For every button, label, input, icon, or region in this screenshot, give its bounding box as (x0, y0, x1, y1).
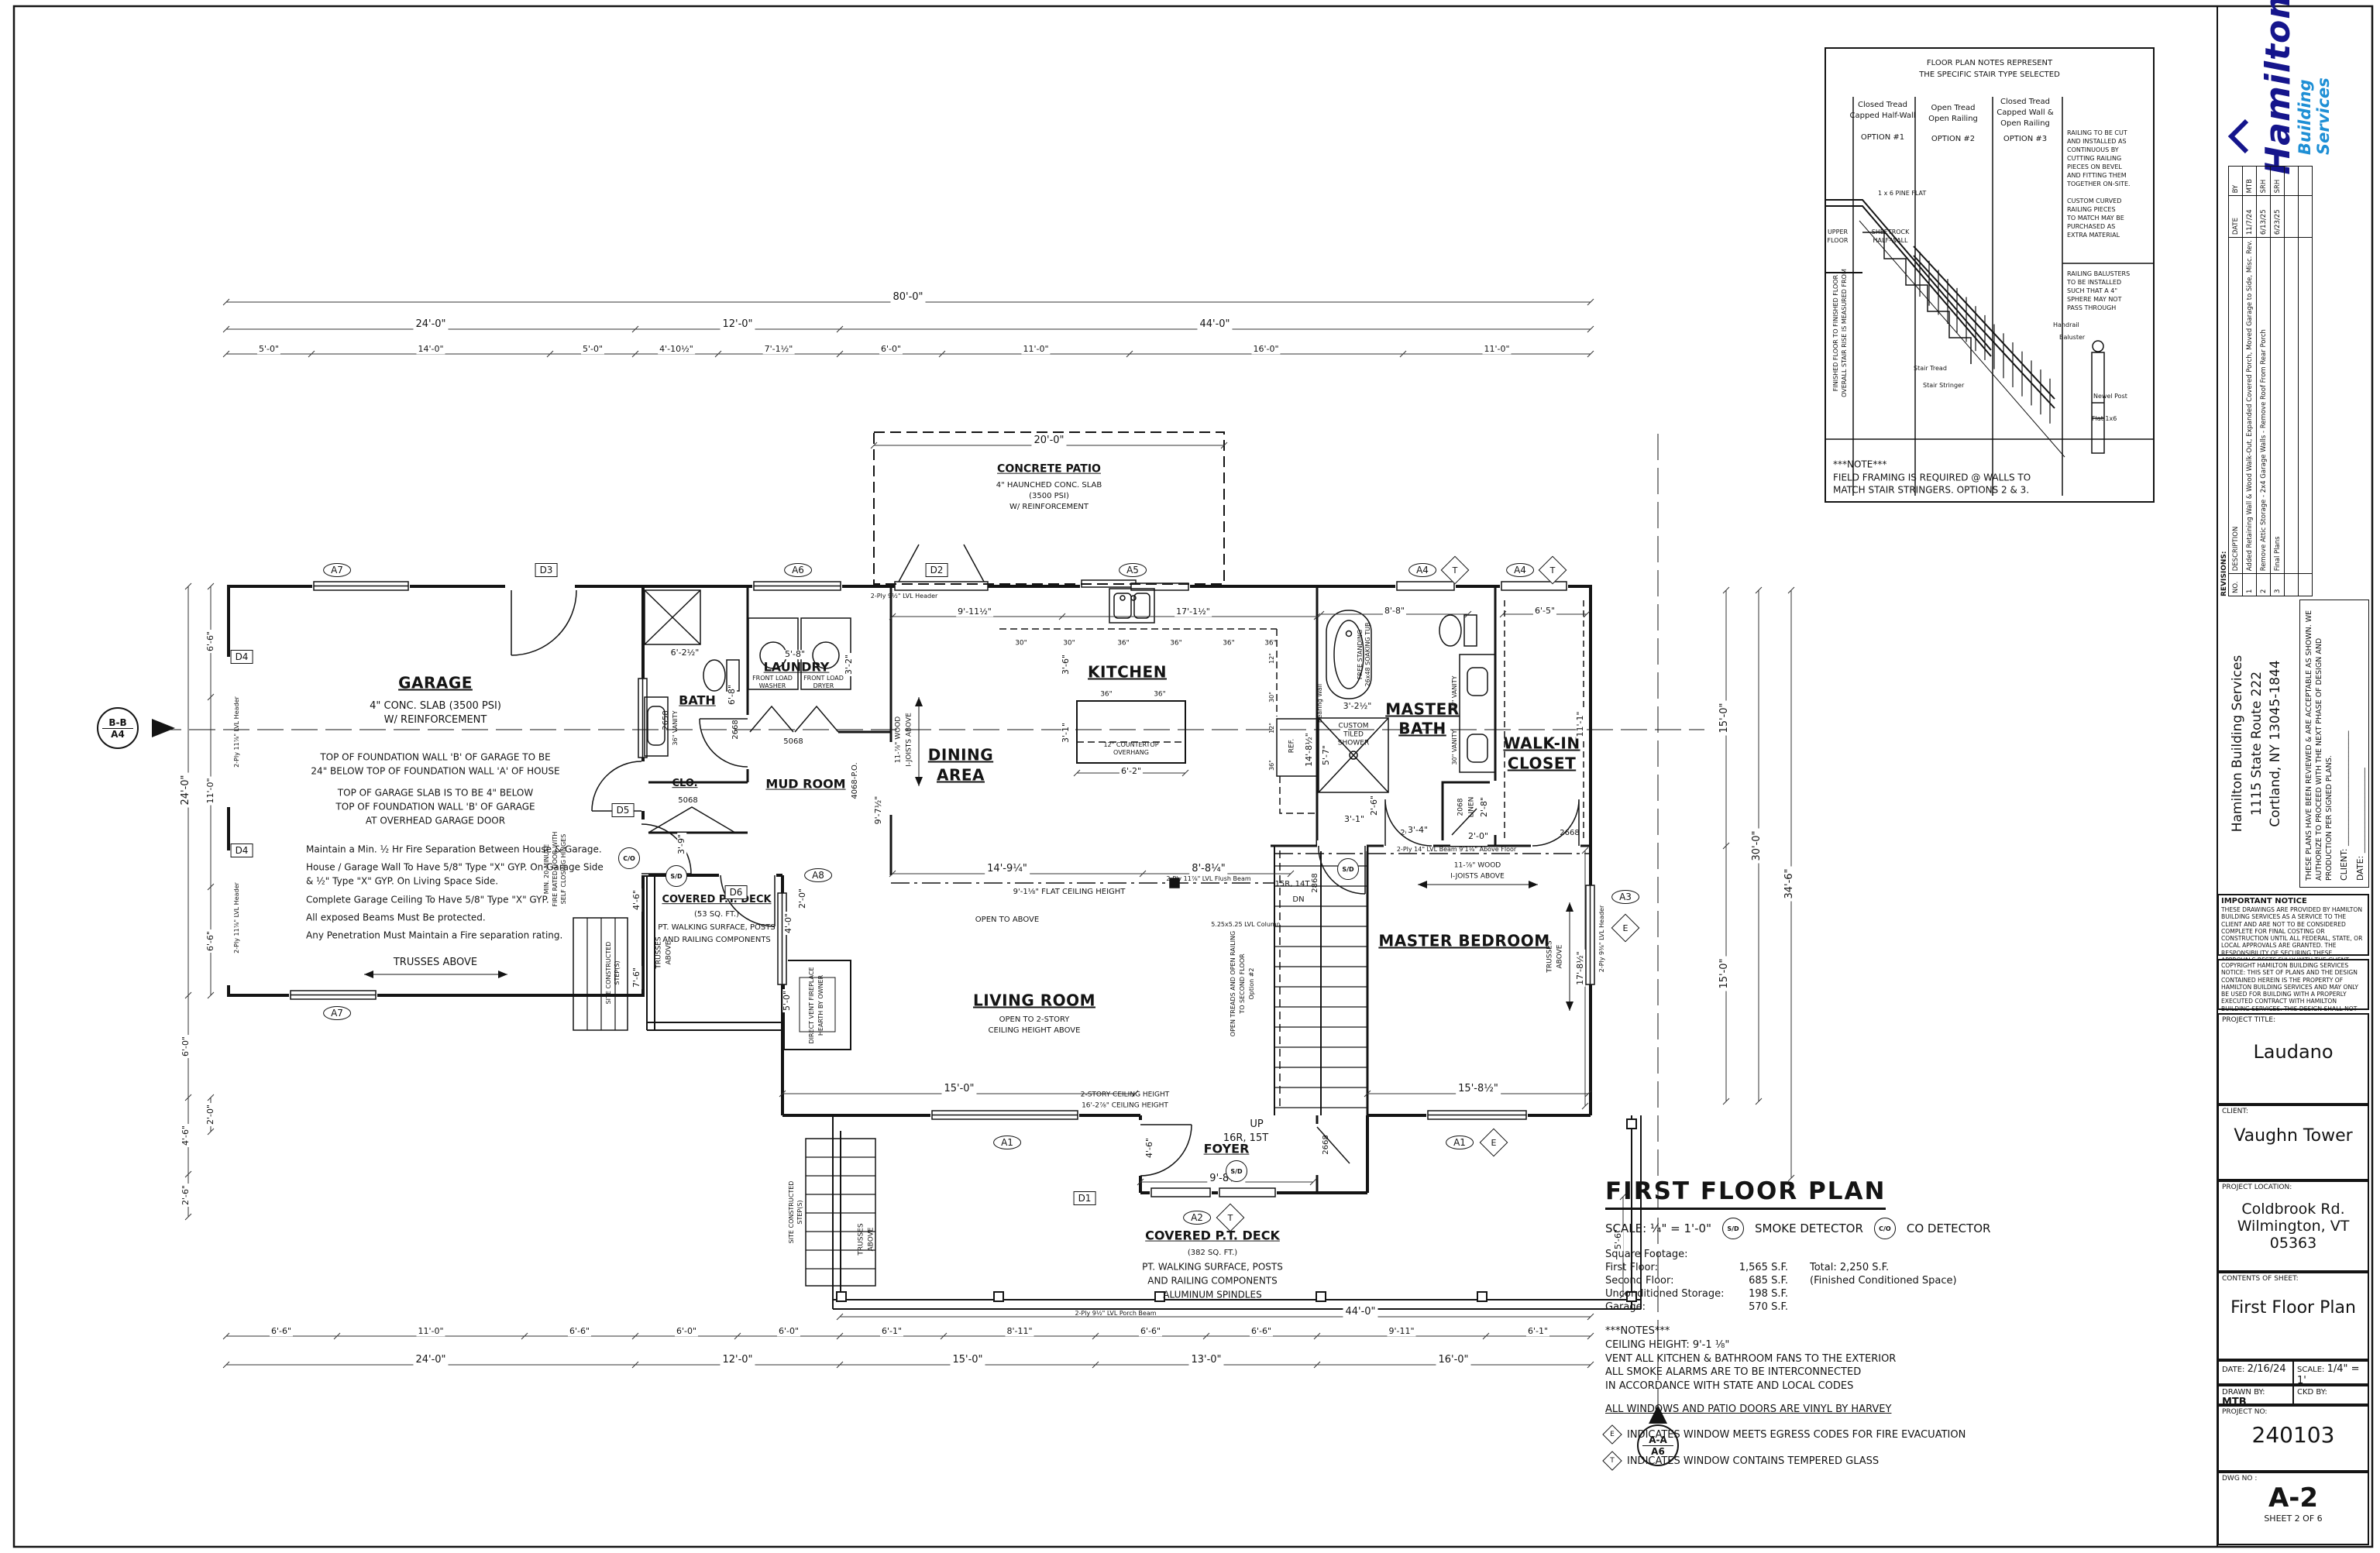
plan-text: AND RAILING COMPONENTS (1147, 1276, 1278, 1287)
plan-text: 2'-8" (1480, 795, 1489, 819)
plan-text: 11'-0" (1021, 345, 1050, 354)
plan-text: WALK-IN (1503, 736, 1580, 752)
plan-text: SHEETROCK (1872, 229, 1910, 235)
plan-text: 14'-0" (416, 345, 445, 354)
client-box: CLIENT: Vaughn Tower (2217, 1105, 2369, 1180)
note-line: VENT ALL KITCHEN & BATHROOM FANS TO THE … (1605, 1352, 2008, 1366)
plan-text: WASHER (759, 683, 786, 689)
plan-text: SITE CONSTRUCTED (606, 942, 612, 1005)
window-tag-A2: A2 (1183, 1211, 1211, 1225)
tempered-note: INDICATES WINDOW CONTAINS TEMPERED GLASS (1627, 1455, 1879, 1467)
plan-text: 8'-8" (1383, 606, 1406, 616)
plan-text: 12'-0" (720, 319, 755, 330)
notes-title: ***NOTES*** (1605, 1325, 2008, 1338)
plan-text: UP (1250, 1119, 1263, 1130)
window-tag-A1: A1 (1446, 1136, 1474, 1149)
plan-text: PT. WALKING SURFACE, POSTS (658, 924, 775, 933)
contents-value: First Floor Plan (2219, 1298, 2368, 1318)
plan-text: 2'-6" (181, 1184, 191, 1207)
plan-text: 2-Ply 11⅞" LVL Header (234, 696, 240, 768)
plan-text: OPEN TREADS AND OPEN RAILING (1230, 931, 1236, 1036)
plan-text: TRUSSES (1546, 940, 1553, 972)
door-tag-D4: D4 (231, 650, 253, 664)
plan-text: 6'-2" (1119, 767, 1143, 776)
plan-text: RAILING BALUSTERS (2067, 271, 2130, 277)
revision-row-empty (2299, 167, 2313, 596)
plan-text: 2-Ply 11⅞" LVL Flush Beam (1166, 876, 1250, 882)
plan-text: 17'-1½" (1175, 607, 1212, 617)
plan-text: 5.25x5.25 LVL Column (1211, 922, 1281, 928)
plan-text: AT OVERHEAD GARAGE DOOR (366, 816, 505, 826)
plan-text: W/ REINFORCEMENT (1009, 503, 1089, 512)
plan-text: 5068 (678, 797, 697, 806)
plan-text: 6'-0" (181, 1035, 191, 1058)
plan-text: 11-⅞" WOOD (895, 716, 902, 763)
plan-text: LAUNDRY (764, 661, 830, 675)
plan-text: 16'-0" (1436, 1355, 1470, 1366)
plan-text: 17'-8½" (1576, 950, 1585, 987)
plan-text: 6'-1" (880, 1327, 903, 1336)
plan-text: SUCH THAT A 4" (2067, 288, 2117, 294)
plan-text: AND INSTALLED AS (2067, 139, 2127, 145)
plan-text: FIELD FRAMING IS REQUIRED @ WALLS TO (1833, 473, 2031, 483)
plan-text: Capped Wall & (1997, 109, 2053, 118)
section-marker-B-B: B-BA4 (97, 707, 139, 749)
project-no-label: PROJECT NO: (2219, 1407, 2368, 1416)
plan-text: 2'-6" (1370, 794, 1379, 817)
plan-text: Complete Garage Ceiling To Have 5/8" Typ… (306, 895, 549, 905)
logo-name: Hamilton (2263, 0, 2294, 175)
plan-text: 6'-0" (879, 345, 903, 354)
drawn-row: DRAWN BY: MTB CKD BY: (2217, 1385, 2369, 1405)
plan-text: (3500 PSI) (1029, 493, 1069, 501)
project-title-box: PROJECT TITLE: Laudano (2217, 1013, 2369, 1105)
door-tag-D5: D5 (612, 803, 635, 817)
plan-text: 3'-1" (1061, 721, 1071, 744)
revisions-block: REVISIONS: NO. DESCRIPTION DATE BY 1Adde… (2220, 166, 2369, 596)
company-logo: Hamilton Building Services (2227, 14, 2369, 155)
plan-text: 4'-10½" (658, 345, 695, 354)
plan-text: AREA (937, 768, 985, 784)
project-title-label: PROJECT TITLE: (2219, 1015, 2368, 1024)
revision-row: 1Added Retaining Wall & Wood Walk-Out, E… (2243, 167, 2257, 596)
rev-col-no: NO. (2229, 574, 2243, 596)
plan-text: 6'-8" (727, 683, 737, 706)
plan-text: CLOSET (1508, 756, 1576, 772)
plan-text: 8'-8¼" (1189, 864, 1227, 874)
rev-col-date: DATE (2229, 196, 2243, 238)
plan-text: SHOWER (1338, 740, 1369, 747)
plan-text: OPTION #3 (2003, 136, 2047, 144)
plan-text: & ½" Type "X" GYP. On Living Space Side. (306, 877, 498, 887)
vinyl-note: ALL WINDOWS AND PATIO DOORS ARE VINYL BY… (1605, 1404, 2008, 1415)
plan-text: 11'-0" (1482, 345, 1511, 354)
smoke-detector-label: SMOKE DETECTOR (1755, 1221, 1863, 1235)
logo-house-icon (2227, 118, 2250, 155)
plan-text: 30'-0" (1752, 828, 1763, 863)
plan-text: 3'-4" (1406, 826, 1429, 835)
plan-text: 11'-1" (1576, 710, 1585, 738)
plan-text: 1 x 6 PINE FLAT (1878, 191, 1926, 197)
note-line: ALL SMOKE ALARMS ARE TO BE INTERCONNECTE… (1605, 1366, 2008, 1379)
plan-text: 4" CONC. SLAB (3500 PSI) (370, 701, 501, 712)
plan-text: FLOOR PLAN NOTES REPRESENT (1927, 60, 2052, 68)
plan-text: GARAGE (398, 675, 473, 692)
plan-text: HEARTH BY OWNER (818, 975, 824, 1036)
approval-date-label: DATE: (2355, 856, 2365, 881)
plan-text: CUTTING RAILING (2067, 156, 2121, 162)
plan-text: CUSTOM CURVED (2067, 198, 2121, 204)
project-no-value: 240103 (2219, 1422, 2368, 1448)
plan-text: 36" (1117, 640, 1130, 647)
plan-text: 9'-1⅛" FLAT CEILING HEIGHT (1013, 888, 1126, 897)
plan-text: Bearing Wall (1317, 684, 1323, 723)
smoke-detector-symbol: S/D (666, 865, 687, 887)
plan-text: 36" (1223, 640, 1235, 647)
date-value: 2/16/24 (2248, 1363, 2286, 1375)
plan-text: STEP(S) (614, 960, 621, 984)
plan-text: 7'-6" (632, 966, 641, 989)
plan-text: 6'-6" (206, 929, 215, 953)
plan-text: HALF-WALL (1873, 238, 1908, 244)
plan-text: 30" (1063, 640, 1075, 647)
client-value: Vaughn Tower (2219, 1126, 2368, 1146)
plan-text: Open Tread (1931, 105, 1975, 113)
plan-text: 13'-0" (1188, 1355, 1223, 1366)
plan-text: 36" (1170, 640, 1182, 647)
plan-text: House / Garage Wall To Have 5/8" Type "X… (306, 863, 604, 873)
plan-text: 8'-11" (1005, 1327, 1034, 1336)
plan-text: All exposed Beams Must Be protected. (306, 913, 486, 923)
plan-text: CONTINUOUS BY (2067, 147, 2119, 153)
project-no-box: PROJECT NO: 240103 (2217, 1405, 2369, 1472)
plan-text: OPEN TO ABOVE (975, 916, 1039, 925)
smoke-detector-icon: S/D (1722, 1218, 1744, 1239)
rev-col-by: BY (2229, 167, 2243, 196)
plan-text: RAILING PIECES (2067, 207, 2116, 213)
plan-text: FRONT LOAD (752, 675, 793, 682)
copyright-notice: COPYRIGHT HAMILTON BUILDING SERVICES NOT… (2217, 959, 2369, 1010)
drawing-sheet: GARAGE4" CONC. SLAB (3500 PSI)W/ REINFOR… (0, 0, 2380, 1553)
plan-text: 15'-0" (1719, 700, 1730, 735)
plan-text: I-JOISTS ABOVE (906, 713, 913, 767)
plan-text: PURCHASED AS (2067, 224, 2115, 230)
plan-text: 6'-2½" (669, 648, 701, 658)
plan-text: AND FITTING THEM (2067, 173, 2127, 179)
plan-text: DINING (928, 747, 993, 764)
plan-text: 3'-1" (1343, 815, 1366, 824)
plan-text: TO MATCH MAY BE (2067, 215, 2124, 222)
plan-text: 12" (1269, 723, 1275, 734)
plan-text: 20'-0" (1031, 435, 1066, 446)
plan-text: 16'-2⅞" CEILING HEIGHT (1082, 1102, 1168, 1109)
plan-text: 7'-1½" (763, 345, 795, 354)
plan-text: MUD ROOM (765, 778, 845, 792)
plan-text: 9'-11" (1387, 1327, 1415, 1336)
plan-text: COVERED P.T. DECK (662, 895, 771, 905)
co-detector-symbol: C/O (618, 847, 640, 869)
plan-text: TOP OF GARAGE SLAB IS TO BE 4" BELOW (338, 789, 533, 799)
plan-text: 4'-6" (1145, 1136, 1154, 1160)
location-box: PROJECT LOCATION: Coldbrook Rd. Wilmingt… (2217, 1180, 2369, 1272)
plan-text: LIVING ROOM (973, 993, 1095, 1009)
drawn-label: DRAWN BY: (2222, 1388, 2265, 1397)
contents-label: CONTENTS OF SHEET: (2219, 1273, 2368, 1283)
plan-text: 2'-0" (798, 887, 807, 910)
plan-text: ALUMINUM SPINDLES (1163, 1290, 1261, 1300)
approval-text: THESE PLANS HAVE BEEN REVIEWED & ARE ACC… (2305, 606, 2334, 881)
plan-text: OPEN TO 2-STORY (999, 1016, 1070, 1025)
plan-text: 2'-0" (206, 1103, 215, 1126)
plan-text: 2658 (662, 710, 671, 730)
plan-text: 6'-6" (1139, 1327, 1162, 1336)
company-address: Hamilton Building Services 1115 State Ro… (2220, 600, 2293, 888)
plan-text: 6'-0" (675, 1327, 698, 1336)
plan-text: 5'-0" (581, 345, 604, 354)
plan-text: SITE CONSTRUCTED (789, 1181, 795, 1244)
plan-text: CONCRETE PATIO (997, 464, 1101, 476)
plan-title: FIRST FLOOR PLAN (1605, 1177, 1886, 1210)
plan-text: OVERALL STAIR RISE IS MEASURED FROM (1842, 269, 1848, 397)
plan-text: 11'-0" (416, 1327, 445, 1336)
plan-text: SELF CLOSING HINGES (561, 834, 567, 905)
window-tag-A7: A7 (323, 1006, 351, 1020)
plan-text: FREE STANDING (1357, 630, 1364, 679)
plan-text: 24'-0" (413, 319, 448, 330)
tempered-icon: T (1602, 1451, 1622, 1470)
plan-text: BATH (679, 695, 716, 708)
plan-text: BATH (1398, 721, 1446, 737)
plan-text: 6'-6" (270, 1327, 293, 1336)
window-tag-A4: A4 (1506, 563, 1534, 577)
plan-text: Closed Tread (1858, 101, 1907, 110)
plan-text: PT. WALKING SURFACE, POSTS (1142, 1263, 1283, 1273)
plan-text: FINISHED FLOOR TO FINISHED FLOOR (1833, 275, 1839, 391)
plan-text: 2868 (1312, 873, 1320, 892)
plan-text: 3'-2" (844, 653, 854, 676)
egress-icon: E (1602, 1424, 1622, 1444)
address-line: Cortland, NY 13045-1844 (2266, 660, 2285, 826)
door-tag-D1: D1 (1074, 1191, 1096, 1205)
plan-text: MATCH STAIR STRINGERS. OPTIONS 2 & 3. (1833, 486, 2029, 496)
plan-text: 2668 (1560, 830, 1579, 838)
sheet-number: SHEET 2 OF 6 (2219, 1513, 2368, 1524)
dwg-no-value: A-2 (2219, 1483, 2368, 1513)
plan-text: 26x48 SOAKING TUB (1365, 623, 1371, 687)
plan-text: TO BE INSTALLED (2067, 280, 2121, 286)
plan-text: TOP OF FOUNDATION WALL 'B' OF GARAGE (335, 802, 535, 813)
plan-text: UPPER (1828, 229, 1848, 235)
checked-label: CKD BY: (2297, 1388, 2327, 1397)
plan-text: 2-Ply 9½" LVL Header (871, 593, 938, 600)
plan-text: I-JOISTS ABOVE (1450, 873, 1505, 880)
fixtures (645, 589, 1495, 792)
plan-text: CLO. (672, 778, 697, 789)
plan-text: 15'-0" (950, 1355, 985, 1366)
contents-box: CONTENTS OF SHEET: First Floor Plan (2217, 1272, 2369, 1360)
plan-text: Stair Tread (1914, 366, 1947, 372)
plan-text: 9'-7½" (874, 795, 883, 826)
address-line: Hamilton Building Services (2228, 655, 2248, 833)
plan-text: 36" VANITY (672, 711, 679, 746)
logo-tagline: Building Services (2296, 14, 2333, 155)
plan-text: 15'-8½" (1456, 1084, 1501, 1094)
plan-text: PASS THROUGH (2067, 305, 2116, 311)
plan-text: 6'-0" (777, 1327, 800, 1336)
plan-text: 6'-6" (568, 1327, 591, 1336)
smoke-detector-symbol: S/D (1226, 1160, 1247, 1182)
plan-text: 16R, 15T (1223, 1133, 1268, 1144)
client-label: CLIENT: (2219, 1106, 2368, 1115)
window-tag-A7: A7 (323, 563, 351, 577)
plan-text: Baluster (2059, 335, 2085, 341)
plan-text: 4" HAUNCHED CONC. SLAB (996, 482, 1102, 490)
plan-text: 2068 (1457, 799, 1464, 816)
plan-text: TRUSSES ABOVE (394, 957, 477, 968)
co-detector-label: CO DETECTOR (1907, 1221, 1991, 1235)
plan-text: 24'-0" (181, 772, 191, 807)
sqft-row: Garage:570 S.F. (1605, 1301, 2008, 1314)
plan-text: OPTION #2 (1931, 136, 1975, 144)
plan-text: 15'-0" (941, 1084, 976, 1094)
plan-text: 2-Ply 9⅜" LVL Header (1599, 905, 1605, 973)
plan-text: RAILING TO BE CUT (2067, 130, 2127, 136)
plan-text: FIRE RATED DOOR WITH (552, 832, 559, 907)
window-tag-A1: A1 (993, 1136, 1021, 1149)
project-title-value: Laudano (2219, 1041, 2368, 1063)
plan-text: 30" (1015, 640, 1027, 647)
plan-text: Open Railing (2000, 120, 2050, 129)
dwg-no-box: DWG NO : A-2 SHEET 2 OF 6 (2217, 1472, 2369, 1545)
plan-text: Newel Post (2093, 393, 2127, 400)
co-detector-icon: C/O (1874, 1218, 1896, 1239)
plan-text: Handrail (2053, 322, 2079, 328)
revision-row-empty (2285, 167, 2299, 596)
window-tag-A4: A4 (1408, 563, 1436, 577)
note-line: CEILING HEIGHT: 9'-1 ⅛" (1605, 1338, 2008, 1352)
plan-text: 24" BELOW TOP OF FOUNDATION WALL 'A' OF … (311, 767, 559, 777)
egress-note: INDICATES WINDOW MEETS EGRESS CODES FOR … (1627, 1429, 1966, 1441)
plan-text: 24'-0" (413, 1355, 448, 1366)
plan-text: THE SPECIFIC STAIR TYPE SELECTED (1919, 71, 2060, 80)
plan-text: 36" (1100, 691, 1113, 698)
window-tag-A5: A5 (1119, 563, 1147, 577)
plan-text: 2668 (732, 720, 741, 739)
plan-text: FOYER (1204, 1143, 1250, 1156)
location-line1: Coldbrook Rd. (2219, 1201, 2368, 1218)
sqft-row: Second Floor:685 S.F.(Finished Condition… (1605, 1275, 2008, 1288)
revisions-label: REVISIONS: (2220, 166, 2228, 596)
revisions-table: NO. DESCRIPTION DATE BY 1Added Retaining… (2228, 166, 2313, 596)
plan-text: 3'-9" (677, 833, 686, 856)
plan-text: 2-Ply 11⅞" LVL Header (234, 882, 240, 953)
plan-text: 9'-11½" (956, 607, 993, 617)
plan-text: 30" (1269, 692, 1275, 703)
sqft-row: First Floor:1,565 S.F.Total: 2,250 S.F. (1605, 1262, 2008, 1275)
plan-text: CUSTOM (1339, 723, 1369, 730)
location-label: PROJECT LOCATION: (2219, 1182, 2368, 1191)
window-tag-A3: A3 (1611, 890, 1639, 904)
plan-text: ABOVE (666, 941, 672, 965)
plan-text: 30" VANITY (1452, 676, 1458, 711)
plan-text: DRYER (813, 683, 834, 689)
plan-text: 30" VANITY (1452, 730, 1458, 765)
plan-text: REF. (1288, 739, 1295, 754)
plan-text: 3'-2½" (1342, 702, 1374, 711)
date-label: DATE: (2222, 1366, 2244, 1374)
windows (291, 580, 1594, 1197)
plan-text: DN (1292, 896, 1304, 905)
plan-text: FLOOR (1828, 238, 1849, 244)
window-tag-A8: A8 (804, 868, 832, 882)
plan-text: 4068-P.O. (851, 762, 860, 799)
plan-text: 36" (1264, 640, 1277, 647)
revision-row: 2Remove Attic Storage - 2x4 Garage Walls… (2257, 167, 2271, 596)
plan-text: 5'-0" (782, 989, 792, 1012)
plan-text: 2-STORY CEILING HEIGHT (1081, 1091, 1170, 1098)
plan-text: 80'-0" (890, 292, 925, 303)
plan-text: 6'-5" (1533, 606, 1556, 616)
plan-text: 12" COUNTERTOP (1103, 742, 1158, 748)
plan-text: 6'-1" (1526, 1327, 1549, 1336)
plan-text: 12" (1269, 653, 1275, 664)
plan-text: 5'-0" (257, 345, 280, 354)
location-line2: Wilmington, VT 05363 (2219, 1218, 2368, 1252)
plan-text: 14'-8½" (1305, 731, 1314, 768)
plan-text: 4'-0" (784, 912, 793, 935)
plan-text: 16'-0" (1251, 345, 1280, 354)
plan-text: KITCHEN (1088, 665, 1167, 681)
plan-text: 5'-8" (783, 650, 807, 659)
plan-text: 2'-0" (1467, 832, 1490, 841)
dwg-no-label: DWG NO : (2219, 1473, 2368, 1483)
window-tag-A6: A6 (784, 563, 812, 577)
plan-text: 4'-6" (181, 1124, 191, 1147)
approval-block: THESE PLANS HAVE BEEN REVIEWED & ARE ACC… (2299, 600, 2369, 888)
plan-text: 14'-9¼" (985, 864, 1030, 874)
revision-row: 3Final Plans 6/23/25SRH (2271, 167, 2285, 596)
sqft-row: Unconditioned Storage:198 S.F. (1605, 1288, 2008, 1301)
plan-text: 5'-7" (1322, 744, 1331, 767)
plan-text: OVERHANG (1113, 750, 1149, 756)
plan-text: W/ REINFORCEMENT (384, 715, 487, 726)
plan-text: ABOVE (1556, 945, 1563, 969)
plan-text: Capped Half-Wall (1849, 112, 1915, 121)
door-tag-D3: D3 (535, 563, 558, 577)
important-notice-title: IMPORTANT NOTICE (2221, 897, 2307, 905)
plan-text: 44'-0" (1197, 319, 1232, 330)
door-tag-D6: D6 (725, 885, 748, 899)
plan-text: AND RAILING COMPONENTS (662, 936, 771, 945)
plan-scale: SCALE: ¼" = 1'-0" (1605, 1221, 1711, 1235)
plan-text: TRUSSES (655, 936, 662, 968)
rev-col-desc: DESCRIPTION (2229, 238, 2243, 574)
plan-text: 11-⅞" WOOD (1454, 862, 1501, 869)
plan-text: TILED (1343, 731, 1364, 738)
plan-text: Flat 1x6 (2092, 416, 2117, 422)
door-tag-D4: D4 (231, 843, 253, 857)
plan-text: 2-Ply 9½" LVL Porch Beam (1075, 1311, 1156, 1317)
door-tag-D2: D2 (926, 563, 948, 577)
plan-text: 5068 (783, 738, 803, 747)
plan-text: 34'-6" (1784, 866, 1795, 901)
plan-text: Any Penetration Must Maintain a Fire sep… (306, 931, 562, 941)
plan-text: MIN. 20-MINUTE (544, 844, 550, 894)
plan-text: CEILING HEIGHT ABOVE (989, 1027, 1081, 1036)
square-footage-table: Square Footage:First Floor:1,565 S.F.Tot… (1605, 1249, 2008, 1314)
plan-text: TOP OF FOUNDATION WALL 'B' OF GARAGE TO … (320, 753, 550, 763)
note-line: IN ACCORDANCE WITH STATE AND LOCAL CODES (1605, 1379, 2008, 1393)
